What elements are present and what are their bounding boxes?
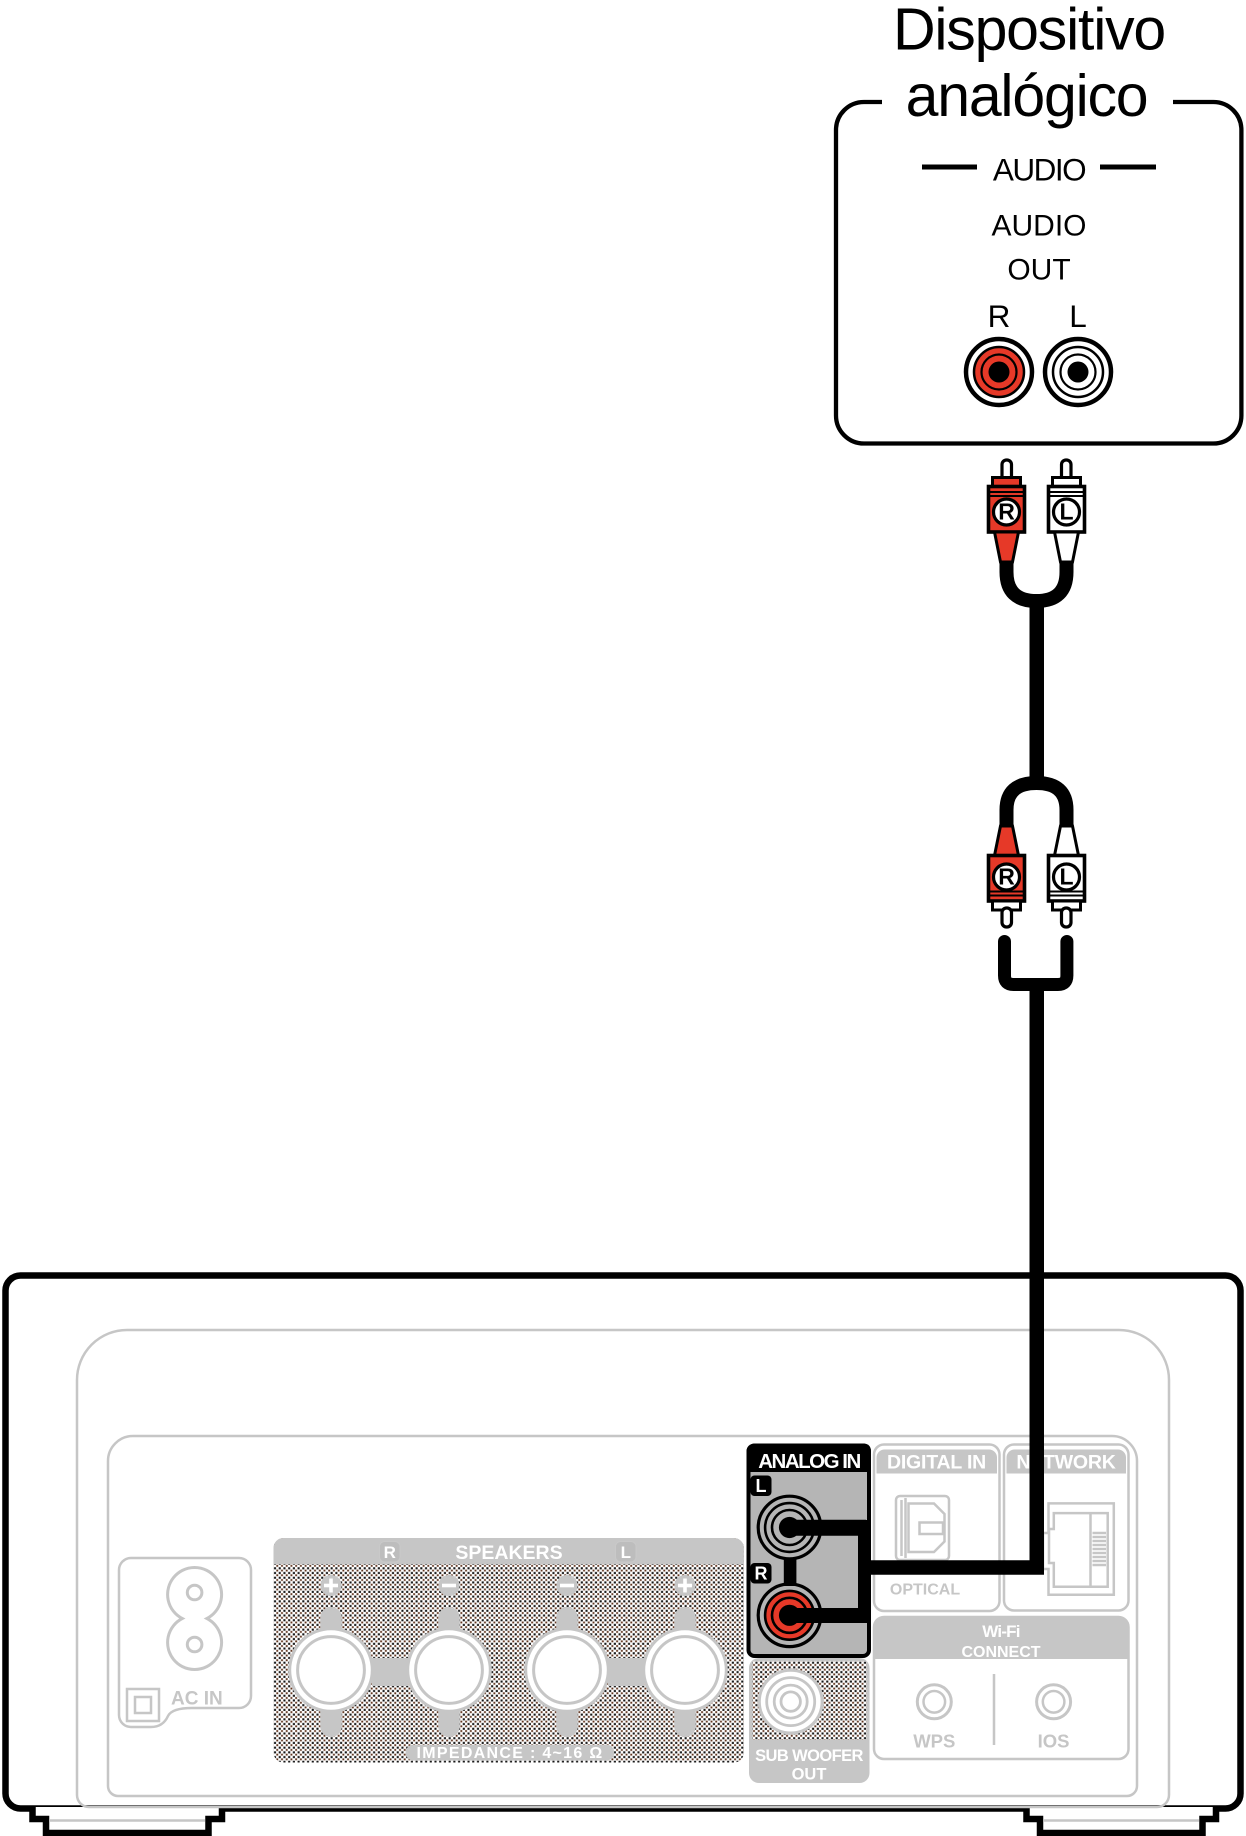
svg-text:AUDIO: AUDIO — [991, 210, 1086, 243]
svg-text:WPS: WPS — [913, 1731, 955, 1752]
svg-text:ANALOG IN: ANALOG IN — [758, 1450, 860, 1473]
svg-text:L: L — [756, 1476, 767, 1496]
svg-text:SUB WOOFER: SUB WOOFER — [755, 1747, 863, 1765]
svg-text:SPEAKERS: SPEAKERS — [455, 1542, 562, 1564]
svg-text:L: L — [1069, 298, 1087, 334]
svg-text:OPTICAL: OPTICAL — [890, 1582, 960, 1599]
svg-text:R: R — [755, 1564, 768, 1584]
svg-text:L: L — [1059, 499, 1073, 525]
svg-text:CONNECT: CONNECT — [961, 1644, 1040, 1661]
svg-text:R: R — [384, 1543, 396, 1562]
svg-text:IOS: IOS — [1038, 1731, 1070, 1752]
svg-text:R: R — [988, 298, 1011, 334]
svg-text:IMPEDANCE : 4~16 Ω: IMPEDANCE : 4~16 Ω — [417, 1745, 604, 1762]
svg-text:L: L — [1059, 864, 1073, 890]
svg-text:Wi-Fi: Wi-Fi — [982, 1622, 1019, 1641]
svg-text:OUT: OUT — [1007, 254, 1070, 287]
svg-text:DIGITAL IN: DIGITAL IN — [887, 1452, 986, 1474]
svg-text:L: L — [621, 1543, 631, 1562]
svg-text:OUT: OUT — [792, 1766, 827, 1784]
svg-text:analógico: analógico — [906, 63, 1148, 129]
svg-text:R: R — [998, 499, 1015, 525]
svg-text:AUDIO: AUDIO — [993, 152, 1085, 188]
svg-text:R: R — [998, 864, 1015, 890]
svg-text:Dispositivo: Dispositivo — [893, 0, 1165, 63]
svg-text:AC IN: AC IN — [171, 1689, 223, 1710]
